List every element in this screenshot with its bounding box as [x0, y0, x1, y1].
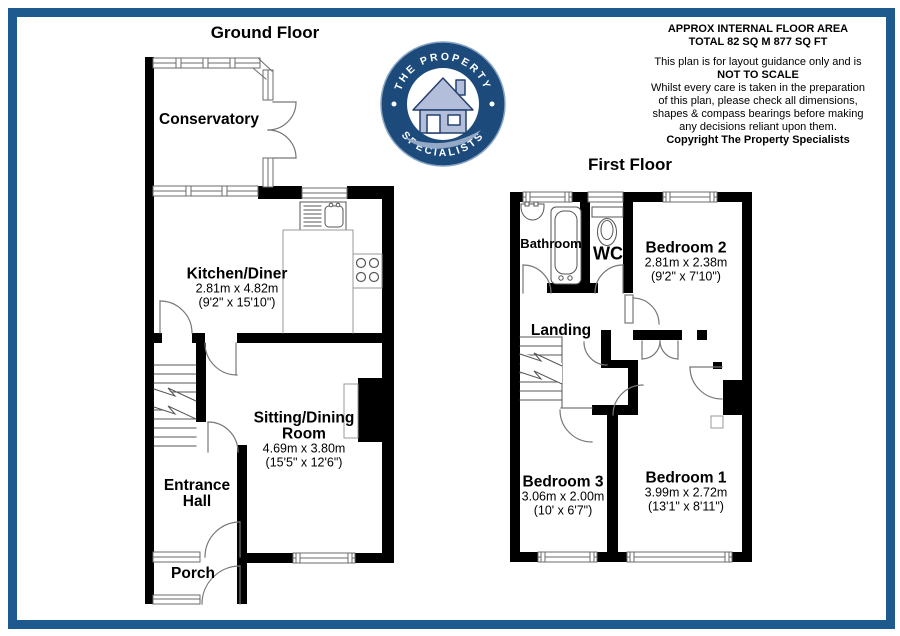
info-block: APPROX INTERNAL FLOOR AREA TOTAL 82 SQ M…	[632, 23, 884, 147]
approx-area-line: APPROX INTERNAL FLOOR AREA	[632, 23, 884, 36]
bedroom2-label: Bedroom 2 2.81m x 2.38m (9'2" x 7'10")	[645, 241, 728, 284]
conservatory-label: Conservatory	[159, 112, 259, 128]
disclaimer-line: of this plan, please check all dimension…	[632, 95, 884, 108]
ground-floor-title: Ground Floor	[211, 23, 320, 43]
porch-label: Porch	[171, 566, 215, 582]
not-to-scale-line: NOT TO SCALE	[632, 69, 884, 82]
kitchen-label: Kitchen/Diner 2.81m x 4.82m (9'2" x 15'1…	[187, 267, 288, 310]
bedroom3-label: Bedroom 3 3.06m x 2.00m (10' x 6'7")	[522, 475, 605, 518]
entrance-hall-label: Entrance Hall	[164, 478, 230, 510]
total-area-line: TOTAL 82 SQ M 877 SQ FT	[632, 36, 884, 49]
bedroom1-label: Bedroom 1 3.99m x 2.72m (13'1" x 8'11")	[645, 471, 728, 514]
bathroom-label: Bathroom	[520, 237, 581, 251]
sitting-room-label: Sitting/Dining Room 4.69m x 3.80m (15'5"…	[254, 411, 355, 470]
first-floor-title: First Floor	[588, 155, 672, 175]
landing-label: Landing	[531, 323, 591, 339]
disclaimer-line: This plan is for layout guidance only an…	[632, 56, 884, 69]
disclaimer-line: any decisions reliant upon them.	[632, 121, 884, 134]
wc-label: WC	[593, 245, 623, 264]
floorplan-page: THE PROPERTY SPECIALISTS Ground Floor Fi…	[0, 0, 900, 636]
disclaimer-line: shapes & compass bearings before making	[632, 108, 884, 121]
copyright-line: Copyright The Property Specialists	[632, 134, 884, 147]
disclaimer-line: Whilst every care is taken in the prepar…	[632, 82, 884, 95]
